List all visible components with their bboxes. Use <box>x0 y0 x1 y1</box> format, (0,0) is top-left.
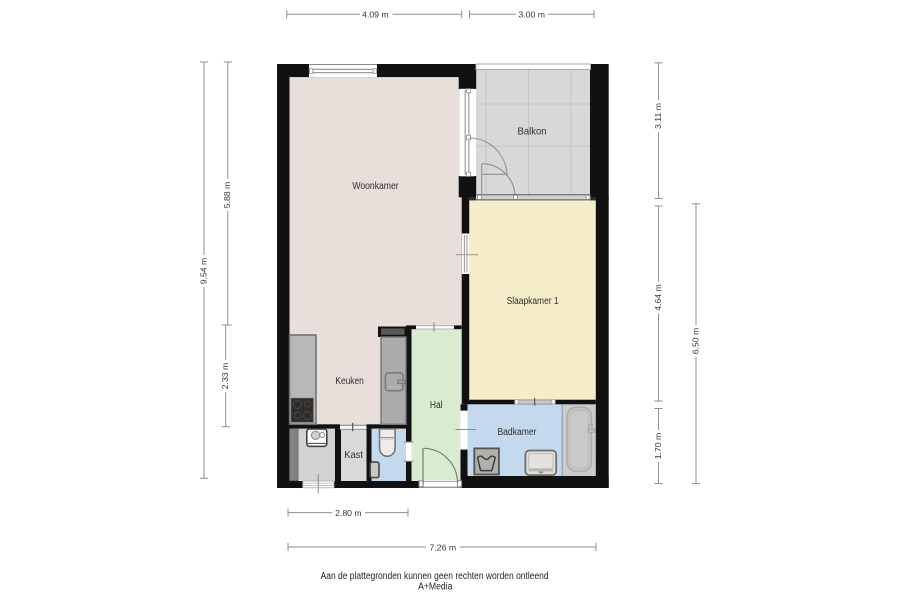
svg-text:7.26 m: 7.26 m <box>430 542 457 552</box>
svg-text:Woonkamer: Woonkamer <box>352 181 399 192</box>
svg-text:Balkon: Balkon <box>518 127 547 138</box>
svg-text:Badkamer: Badkamer <box>497 427 537 438</box>
svg-text:4.64 m: 4.64 m <box>653 284 663 311</box>
svg-text:1.70 m: 1.70 m <box>653 433 663 460</box>
svg-text:Slaapkamer 1: Slaapkamer 1 <box>507 296 559 307</box>
svg-text:5.88 m: 5.88 m <box>222 182 232 209</box>
svg-text:2.80 m: 2.80 m <box>335 508 362 518</box>
svg-text:Keuken: Keuken <box>335 376 363 387</box>
svg-text:3.11 m: 3.11 m <box>653 103 663 129</box>
svg-text:6.50 m: 6.50 m <box>690 328 700 355</box>
svg-text:9.54 m: 9.54 m <box>198 258 208 285</box>
svg-text:A+Media: A+Media <box>418 582 453 593</box>
svg-text:3.00 m: 3.00 m <box>518 10 545 20</box>
svg-text:2.33 m: 2.33 m <box>220 363 230 390</box>
svg-text:Hal: Hal <box>430 400 443 411</box>
svg-text:Kast: Kast <box>344 450 363 461</box>
svg-text:4.09 m: 4.09 m <box>362 10 389 20</box>
svg-text:Aan de plattegronden kunnen ge: Aan de plattegronden kunnen geen rechten… <box>321 571 549 582</box>
